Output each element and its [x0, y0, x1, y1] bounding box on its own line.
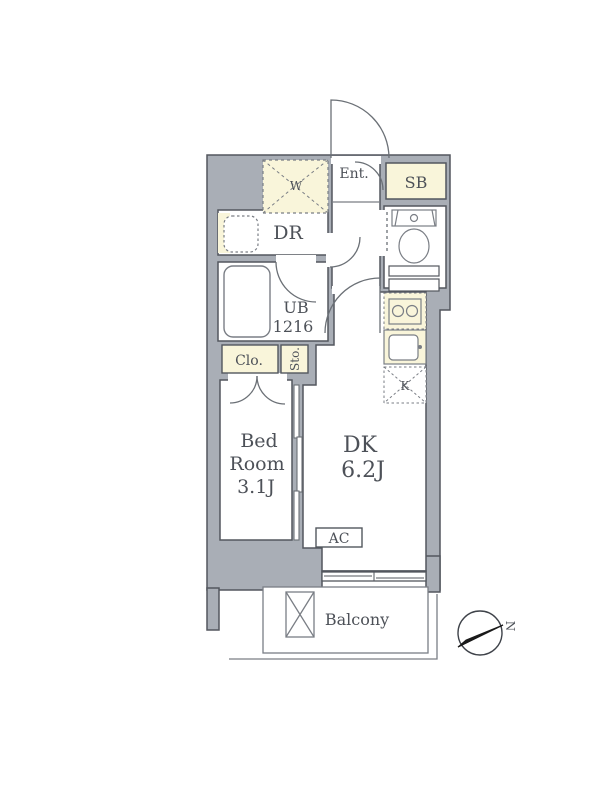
- wall-left-lower-strip: [207, 588, 219, 630]
- compass: N: [458, 611, 517, 655]
- label-dk-line1: DK: [343, 433, 378, 458]
- label-shoe-box: SB: [405, 173, 428, 192]
- floor-plan: N Ent. SB DR UB 1216 Clo. Sto. W K Bed R…: [0, 0, 600, 800]
- label-bedroom-line1: Bed: [240, 430, 277, 452]
- label-unit-bath-line1: UB: [283, 298, 308, 317]
- label-dk-line2: 6.2J: [341, 458, 385, 483]
- washbasin-icon: [218, 213, 258, 253]
- bathtub-icon: [224, 266, 270, 337]
- label-balcony: Balcony: [325, 610, 389, 629]
- label-unit-bath-line2: 1216: [273, 317, 314, 336]
- floor-plan-drawing: N Ent. SB DR UB 1216 Clo. Sto. W K Bed R…: [0, 0, 600, 800]
- sink-icon: [384, 330, 426, 364]
- label-entrance: Ent.: [339, 166, 368, 182]
- label-washer: W: [290, 179, 303, 193]
- entrance-door: [331, 100, 389, 158]
- stove-icon: [384, 293, 426, 329]
- label-dressing-room: DR: [273, 222, 303, 244]
- label-closet: Clo.: [235, 353, 263, 369]
- compass-circle: [458, 611, 502, 655]
- label-bedroom-line3: 3.1J: [237, 476, 275, 498]
- label-bedroom-line2: Room: [229, 453, 284, 475]
- label-ac: AC: [328, 531, 350, 547]
- label-storage: Sto.: [288, 347, 302, 371]
- label-kitchen-marker: K: [401, 379, 411, 393]
- wall-shelves: [389, 266, 439, 291]
- compass-north-label: N: [503, 621, 517, 632]
- balcony-window: [322, 572, 426, 581]
